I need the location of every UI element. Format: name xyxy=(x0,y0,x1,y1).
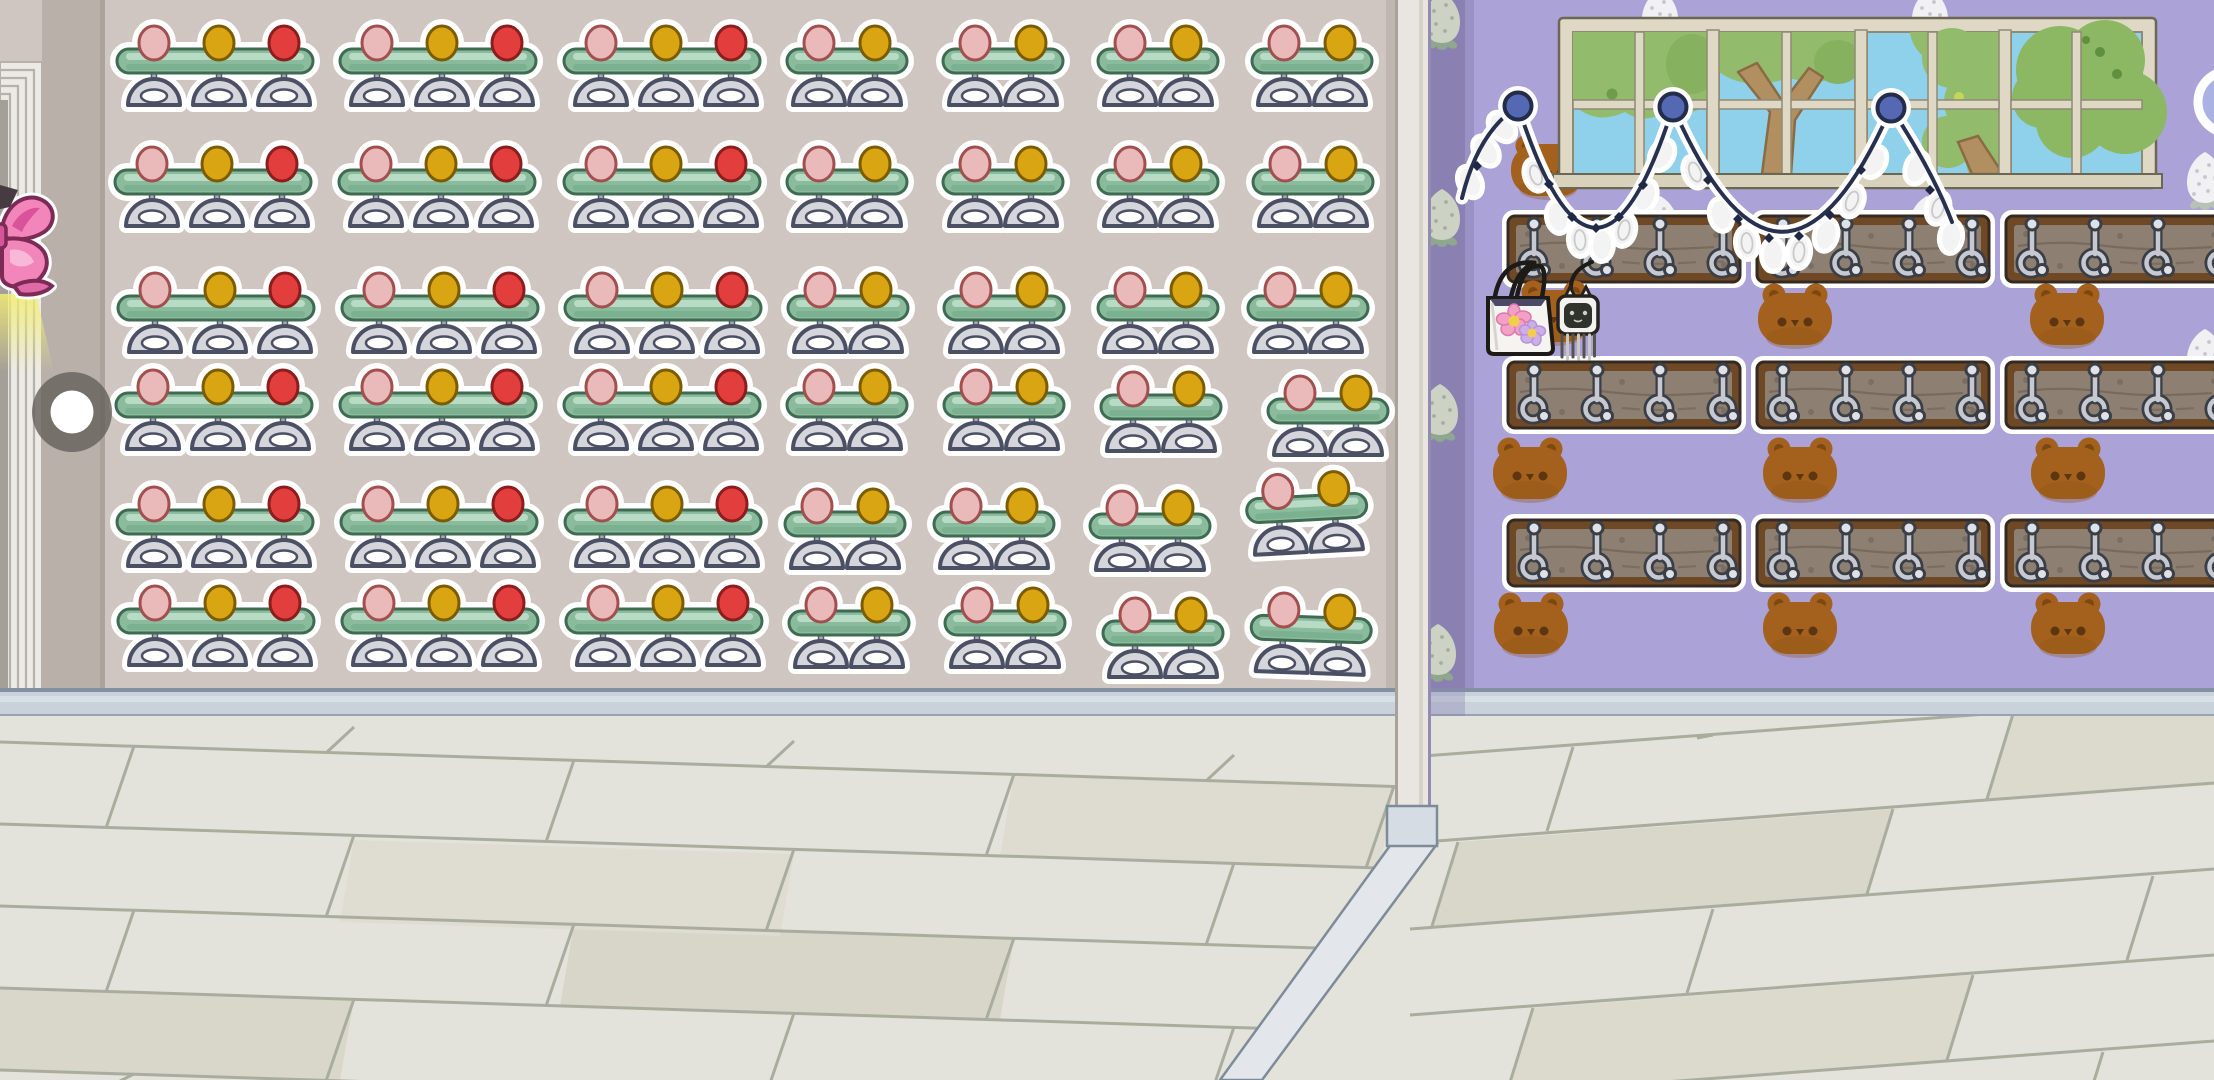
coat-rack-wide[interactable] xyxy=(115,147,311,226)
corner-pillar-foot xyxy=(1387,806,1437,846)
coat-rack-wide[interactable] xyxy=(342,273,538,352)
hook-board[interactable] xyxy=(1502,514,1746,592)
coat-rack-wide[interactable] xyxy=(564,370,760,449)
coat-rack-wide[interactable] xyxy=(339,147,535,226)
coat-rack-wide[interactable] xyxy=(117,26,313,105)
garland-pin[interactable] xyxy=(1653,87,1693,127)
bear-sticker[interactable] xyxy=(1758,284,1832,350)
bear-sticker[interactable] xyxy=(2031,593,2105,659)
left-wall-corner-shade xyxy=(1386,0,1395,690)
bear-sticker[interactable] xyxy=(2030,284,2104,350)
garland-pin[interactable] xyxy=(1871,88,1911,128)
corner-pillar xyxy=(1395,0,1431,840)
hook-board[interactable] xyxy=(2000,514,2214,592)
hook-board[interactable] xyxy=(1502,356,1746,434)
coat-rack-wide[interactable] xyxy=(341,487,537,566)
hook-board[interactable] xyxy=(1751,356,1995,434)
hook-board[interactable] xyxy=(2000,356,2214,434)
right-wall-corner-shadow xyxy=(1431,0,1465,690)
coat-rack-wide[interactable] xyxy=(342,586,538,665)
bear-sticker[interactable] xyxy=(2031,438,2105,504)
hook-board[interactable] xyxy=(1751,514,1995,592)
bear-sticker[interactable] xyxy=(1763,593,1837,659)
door-wall-return-edge xyxy=(100,0,105,690)
coat-rack-wide[interactable] xyxy=(564,26,760,105)
bear-sticker[interactable] xyxy=(1763,438,1837,504)
baseboard xyxy=(0,688,2214,718)
coat-rack-wide[interactable] xyxy=(340,26,536,105)
room-nav-button-left[interactable] xyxy=(32,372,112,452)
coat-rack-wide[interactable] xyxy=(118,273,314,352)
coat-rack-wide[interactable] xyxy=(564,147,760,226)
bear-sticker[interactable] xyxy=(1493,438,1567,504)
door-wall-return xyxy=(42,0,104,690)
hook-board[interactable] xyxy=(2000,210,2214,288)
coat-rack-wide[interactable] xyxy=(566,586,762,665)
garland-pin[interactable] xyxy=(1498,86,1538,126)
scene-canvas xyxy=(0,0,2214,1080)
coat-rack-wide[interactable] xyxy=(117,487,313,566)
bear-sticker[interactable] xyxy=(1494,593,1568,659)
scene xyxy=(0,0,2214,1080)
coat-rack-wide[interactable] xyxy=(340,370,536,449)
nav-dot-icon xyxy=(51,391,94,434)
right-wall-corner-shadow-edge xyxy=(1465,0,1474,690)
coat-rack-wide[interactable] xyxy=(116,370,312,449)
door-frame xyxy=(0,62,42,690)
coat-rack-wide[interactable] xyxy=(565,273,761,352)
coat-rack-wide[interactable] xyxy=(565,487,761,566)
coat-rack-wide[interactable] xyxy=(118,586,314,665)
